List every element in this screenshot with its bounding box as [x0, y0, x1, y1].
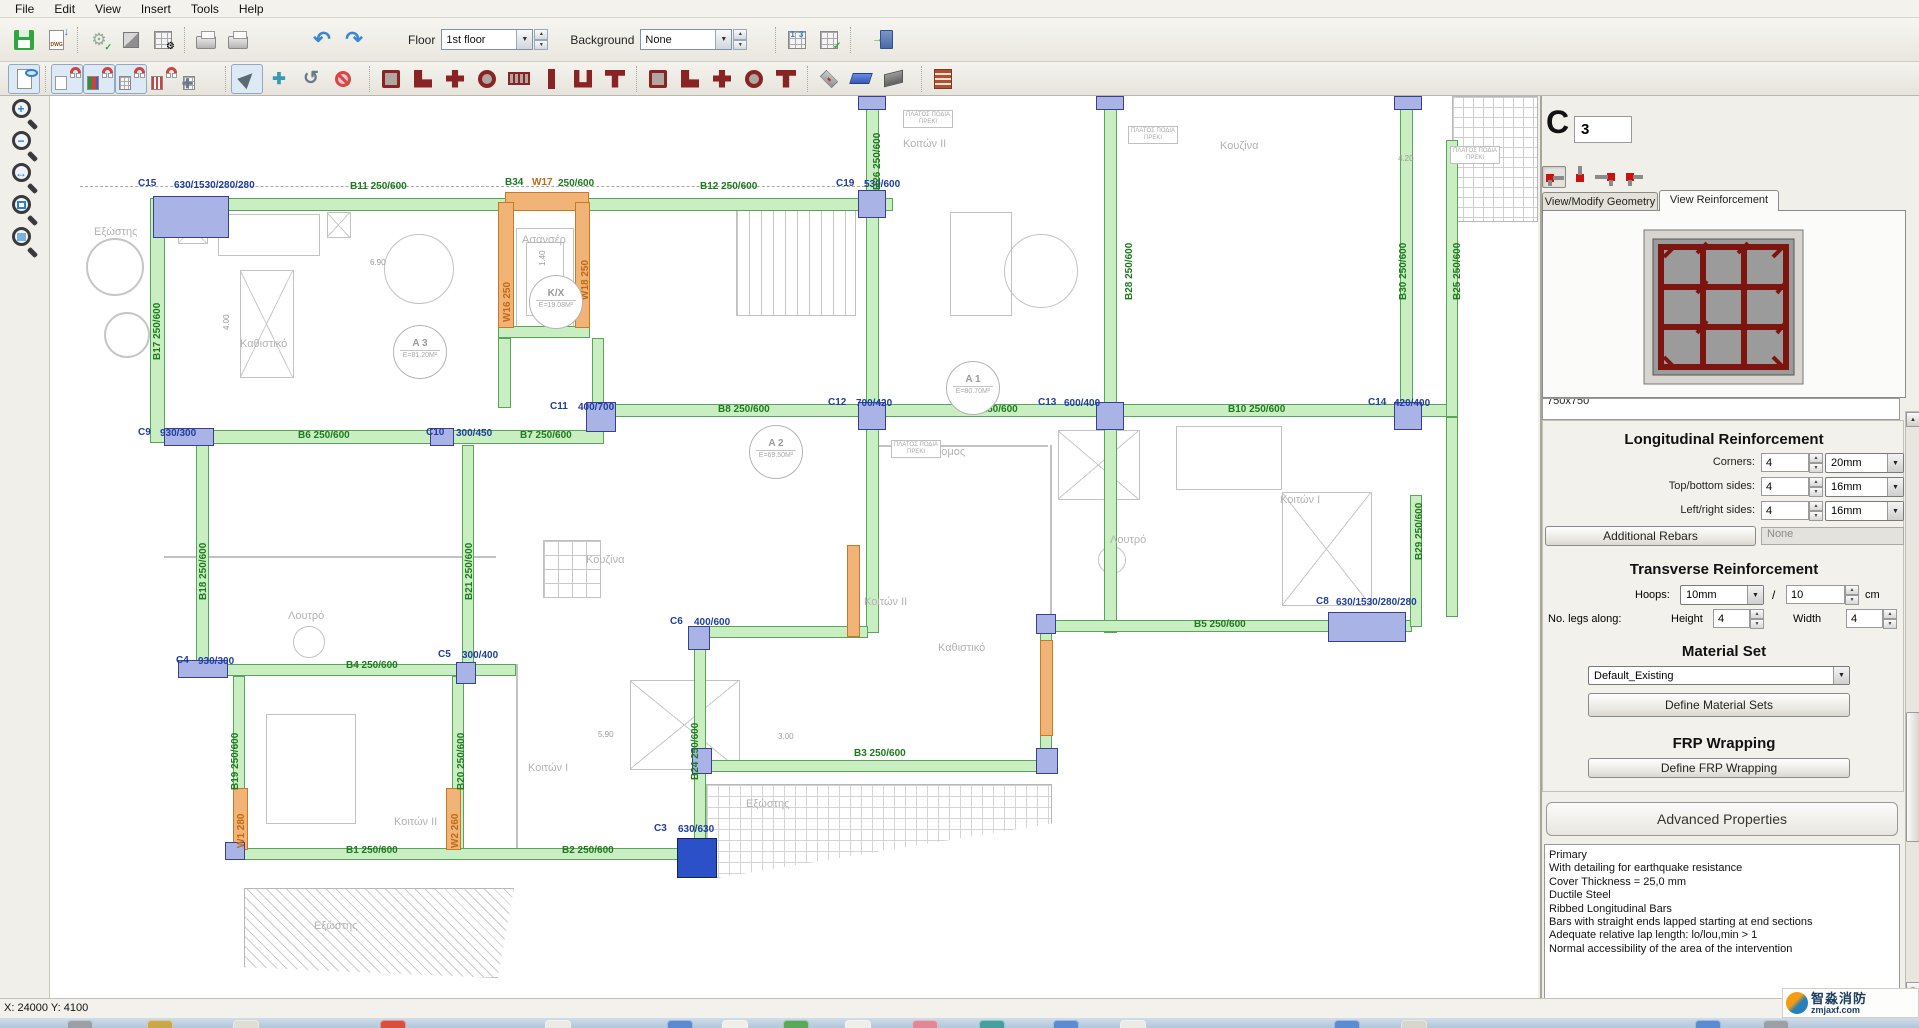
- plan-member-label: C8: [1316, 596, 1329, 607]
- menu-bar: FileEditViewInsertToolsHelp: [0, 0, 1919, 18]
- plan-member-label: B26 250/600: [872, 133, 883, 190]
- grid-icon: [119, 76, 131, 90]
- plan-area-circle: A 2E=69.50M²: [749, 425, 803, 479]
- plan-furniture: [1282, 492, 1372, 606]
- taskbar-app-icon[interactable]: [147, 1020, 173, 1028]
- magnifier-handle: [26, 119, 37, 130]
- zoom-extents-icon: ↔: [12, 163, 31, 182]
- topbottom-count-input[interactable]: [1761, 477, 1809, 496]
- zoom-window-icon: [12, 195, 31, 214]
- legs-width-input[interactable]: [1846, 609, 1883, 628]
- plan-room-label: Λουτρό: [1110, 534, 1146, 546]
- toolbar-separator: [225, 66, 226, 92]
- plan-room-label: Κοιτών II: [394, 816, 437, 828]
- scroll-up-arrow[interactable]: ▲: [1906, 412, 1919, 427]
- U-section-tool[interactable]: [567, 64, 599, 94]
- plan-furniture: [244, 888, 514, 978]
- plan-lintel-label: ΠΛΑΤΟΣ ΠΟΔΙΑΠΡΕΚΙ: [1128, 126, 1178, 144]
- column-cross-tool[interactable]: [439, 64, 471, 94]
- snap-nodes-button[interactable]: ✚: [179, 64, 211, 94]
- advanced-property-line: Cover Thickness = 25,0 mm: [1549, 876, 1897, 889]
- tab-view-reinforcement[interactable]: View Reinforcement: [1659, 190, 1779, 211]
- cross-section-icon: [446, 70, 464, 88]
- taskbar-app-icon[interactable]: [979, 1020, 1005, 1028]
- plan-member-label: W2 260: [450, 814, 461, 848]
- plan-room-label: Κοιτών II: [864, 596, 907, 608]
- taskbar-app-icon[interactable]: [912, 1020, 938, 1028]
- legs-height-spinner[interactable]: ▲▼: [1750, 609, 1764, 628]
- plan-furniture: [293, 626, 325, 658]
- plan-column-selected[interactable]: [677, 838, 717, 878]
- plan-member-label: B34: [505, 177, 523, 188]
- plan-member-label: 300/450: [456, 428, 492, 439]
- zoom-sidebar: + − ↔: [0, 96, 50, 998]
- taskbar-app-icon[interactable]: [783, 1020, 809, 1028]
- toolbar-separator: [184, 27, 185, 53]
- plan-column[interactable]: [858, 190, 886, 218]
- topbottom-label: Top/bottom sides:: [1669, 480, 1755, 492]
- plan-column[interactable]: [1036, 748, 1058, 774]
- square-jacket-icon: [649, 70, 667, 88]
- plan-member-label: C5: [438, 649, 451, 660]
- wall-section-tool[interactable]: [503, 64, 535, 94]
- leftright-label: Left/right sides:: [1680, 504, 1755, 516]
- plan-member-label: W17: [532, 177, 553, 188]
- plan-member-label: C10: [426, 427, 444, 438]
- plan-furniture: [630, 680, 740, 770]
- material-set-select[interactable]: Default_Existing▼: [1588, 666, 1850, 685]
- advanced-property-line: Normal accessibility of the area of the …: [1549, 943, 1897, 956]
- plan-member-label: B6 250/600: [298, 430, 350, 441]
- magnet-icon: [102, 67, 113, 77]
- zoom-in-button[interactable]: +: [9, 98, 41, 128]
- plan-room-label: Λουτρό: [288, 610, 324, 622]
- zoom-selected-button[interactable]: [9, 226, 41, 256]
- plan-furniture: [543, 540, 601, 598]
- plan-column[interactable]: [456, 662, 476, 684]
- print-button[interactable]: [190, 25, 222, 55]
- corners-diameter-select[interactable]: 20mm▼: [1825, 453, 1904, 473]
- L-jacket-icon: [681, 70, 699, 88]
- printer-preview-icon: [228, 36, 248, 49]
- magnet-icon: [166, 67, 177, 77]
- plan-member-label: B24 250/600: [690, 723, 701, 780]
- background-select[interactable]: None▼: [640, 29, 732, 50]
- hoops-diameter-value: 10mm: [1686, 589, 1717, 601]
- toolbar-separator: [77, 27, 78, 53]
- plan-member-label: 600/400: [1064, 398, 1100, 409]
- taskbar-app-icon[interactable]: [1401, 1020, 1427, 1028]
- plan-member-label: 630/1530/280/280: [1336, 597, 1417, 608]
- member-type-label: C: [1546, 104, 1569, 141]
- plan-dimension: 5.90: [598, 730, 614, 739]
- plan-member-label: C13: [1038, 397, 1056, 408]
- taskbar-app-icon[interactable]: [667, 1020, 693, 1028]
- floor-numbering-button[interactable]: 13: [781, 25, 813, 55]
- magnifier-handle: [26, 247, 37, 258]
- red-grid-icon: [151, 76, 163, 90]
- save-button[interactable]: [8, 25, 40, 55]
- material-set-title: Material Set: [1543, 643, 1905, 660]
- longitudinal-title: Longitudinal Reinforcement: [1543, 431, 1905, 448]
- hoops-spacing-spinner[interactable]: ▲▼: [1845, 585, 1859, 604]
- plan-furniture: [327, 212, 351, 238]
- legs-height-input[interactable]: [1713, 609, 1750, 628]
- plan-dimension: 3.00: [778, 732, 794, 741]
- watermark: 智淼消防zmjaxf.com: [1782, 988, 1919, 1018]
- panel-scrollbar[interactable]: ▲ ▼: [1905, 411, 1919, 998]
- legs-width-spinner[interactable]: ▲▼: [1883, 609, 1897, 628]
- plan-furniture: [1176, 426, 1282, 490]
- plan-room-label: Ασανσέρ: [522, 234, 566, 246]
- magnifier-handle: [26, 215, 37, 226]
- width-label: Width: [1793, 613, 1821, 625]
- cross-arrows-icon: ✚: [182, 76, 193, 92]
- plan-member-label: 700/420: [856, 398, 892, 409]
- plan-member-label: B10 250/600: [1228, 404, 1285, 415]
- plan-beam[interactable]: [233, 848, 710, 860]
- plan-wall[interactable]: [847, 545, 860, 637]
- reinforcement-preview-box: [1542, 210, 1906, 398]
- advanced-property-line: Adequate relative lap length: lo/lou,min…: [1549, 929, 1897, 942]
- corners-count-input[interactable]: [1761, 453, 1809, 472]
- plan-beam[interactable]: [498, 338, 511, 408]
- zoom-window-button[interactable]: [9, 194, 41, 224]
- plan-column[interactable]: [1036, 614, 1056, 634]
- plan-beam[interactable]: [700, 760, 1052, 772]
- plan-member-label: B30 250/600: [1398, 243, 1409, 300]
- L-section-icon: [414, 70, 432, 88]
- column-circle-tool[interactable]: [471, 64, 503, 94]
- dwg-import-button[interactable]: ↓: [40, 25, 72, 55]
- plan-furniture: [266, 714, 356, 824]
- chevron-down-icon: ▼: [1833, 667, 1849, 684]
- zoom-extents-button[interactable]: ↔: [9, 162, 41, 192]
- dwg-file-icon: [49, 30, 64, 50]
- orientation-button-2[interactable]: [1568, 166, 1592, 188]
- plan-member-label: B28 250/600: [1124, 243, 1135, 300]
- magnet-icon: [70, 67, 81, 77]
- rotate-icon: ↺: [303, 67, 319, 90]
- plan-beam[interactable]: [1104, 96, 1117, 411]
- plan-furniture: [950, 212, 1012, 316]
- background-value: None: [645, 34, 671, 46]
- toolbar-separator: [850, 27, 851, 53]
- undo-icon: ↶: [313, 29, 331, 50]
- undo-button[interactable]: ↶: [306, 25, 338, 55]
- plan-room-label: Κουζίνα: [1220, 140, 1259, 152]
- jacket-L-tool[interactable]: [674, 64, 706, 94]
- plan-member-label: B4 250/600: [346, 660, 398, 671]
- zoom-in-icon: +: [12, 99, 31, 118]
- plan-member-label: B11 250/600: [350, 181, 407, 192]
- plan-room-label: Κοιτών I: [528, 762, 568, 774]
- floor-value: 1st floor: [446, 34, 485, 46]
- plan-member-label: B1 250/600: [346, 845, 398, 856]
- advanced-property-line: Bars with straight ends lapped starting …: [1549, 916, 1897, 929]
- corners-diameter-value: 20mm: [1831, 457, 1862, 469]
- plan-member-label: 400/700: [578, 402, 614, 413]
- wall-tool[interactable]: [535, 64, 567, 94]
- plan-member-label: B29 250/600: [1414, 503, 1425, 560]
- plan-member-label: 420/400: [1394, 398, 1430, 409]
- plan-column[interactable]: [1096, 402, 1124, 430]
- menu-item-file[interactable]: File: [6, 1, 43, 17]
- status-bar: X: 24000 Y: 4100: [0, 998, 1919, 1018]
- taskbar-app-icon[interactable]: [1695, 1020, 1721, 1028]
- beam-tool[interactable]: [845, 64, 877, 94]
- building-icon: [934, 69, 952, 89]
- additional-rebars-value: None: [1761, 527, 1904, 545]
- building-view-button[interactable]: [927, 64, 959, 94]
- member-number-input[interactable]: [1574, 116, 1632, 143]
- section-size-field: 750x750: [1542, 398, 1900, 420]
- topbottom-spinner[interactable]: ▲▼: [1809, 477, 1823, 496]
- plan-member-label: W16 250: [502, 282, 513, 322]
- forbid-icon: [335, 71, 351, 87]
- cursor-coordinates: X: 24000 Y: 4100: [4, 1002, 88, 1014]
- plan-member-label: B21 250/600: [464, 543, 475, 600]
- snap-dwg-button[interactable]: [51, 64, 83, 94]
- plan-column[interactable]: [1328, 612, 1406, 642]
- watermark-line2: zmjaxf.com: [1811, 1005, 1867, 1015]
- plan-wall[interactable]: [1040, 640, 1053, 736]
- exit-button[interactable]: [870, 25, 902, 55]
- orientation-button-4[interactable]: [1622, 166, 1646, 188]
- topbottom-diameter-value: 16mm: [1831, 481, 1862, 493]
- floor-spinner[interactable]: ▲▼: [534, 29, 548, 50]
- plan-member-label: 400/600: [694, 617, 730, 628]
- material-set-value: Default_Existing: [1594, 670, 1674, 682]
- plan-member-label: B7 250/600: [520, 430, 572, 441]
- orientation-button-1[interactable]: [1542, 166, 1566, 188]
- beam-3d-icon: [849, 73, 873, 84]
- taskbar-app-icon[interactable]: [1053, 1020, 1079, 1028]
- plan-member-label: 300/400: [462, 650, 498, 661]
- cursor-arrow-icon: [237, 68, 258, 88]
- circle-section-icon: [478, 70, 496, 88]
- chevron-down-icon: ▼: [1887, 454, 1903, 472]
- taskbar-app-icon[interactable]: [845, 1020, 871, 1028]
- leftright-count-input[interactable]: [1761, 501, 1809, 520]
- plan-room-label: Καθιστικό: [240, 338, 287, 350]
- menu-item-edit[interactable]: Edit: [45, 1, 84, 17]
- advanced-properties-text: PrimaryWith detailing for earthquake res…: [1544, 844, 1900, 1002]
- plan-member-label: C11: [550, 401, 568, 412]
- magnifier-handle: [26, 151, 37, 162]
- corners-spinner[interactable]: ▲▼: [1809, 453, 1823, 472]
- windows-taskbar: [0, 1018, 1919, 1028]
- print-preview-button[interactable]: [222, 25, 254, 55]
- magnet-icon: [134, 67, 145, 77]
- plan-member-label: C19: [836, 178, 854, 189]
- snap-redgrid-button[interactable]: [147, 64, 179, 94]
- redo-button[interactable]: ↷: [338, 25, 370, 55]
- define-frp-wrapping-button[interactable]: Define FRP Wrapping: [1588, 758, 1850, 778]
- plan-room-label: Κοιτών II: [903, 138, 946, 150]
- taskbar-app-icon[interactable]: [1334, 1020, 1360, 1028]
- toolbar-separator: [369, 66, 370, 92]
- 3d-view-button[interactable]: [115, 25, 147, 55]
- background-label: Background: [570, 33, 634, 47]
- cross-jacket-icon: [713, 70, 731, 88]
- hoops-diameter-select[interactable]: 10mm▼: [1680, 585, 1764, 605]
- plan-column[interactable]: [153, 196, 229, 238]
- plan-dimension: 6.90: [370, 258, 386, 267]
- floor-plan-canvas[interactable]: C15630/1530/280/280B11 250/600B34W17250/…: [50, 96, 1538, 998]
- plan-furniture: [218, 214, 320, 256]
- exit-door-icon: [880, 30, 893, 49]
- slash-separator: /: [1772, 588, 1775, 602]
- grid-settings-button[interactable]: ⚙: [147, 25, 179, 55]
- delete-tool[interactable]: [327, 64, 359, 94]
- menu-item-insert[interactable]: Insert: [132, 1, 180, 17]
- snap-grid-button[interactable]: [115, 64, 147, 94]
- floor-select[interactable]: 1st floor▼: [441, 29, 533, 50]
- chevron-down-icon: ▼: [715, 30, 731, 49]
- settings-button[interactable]: ⚙✓: [83, 25, 115, 55]
- advanced-properties-header[interactable]: Advanced Properties: [1546, 802, 1898, 836]
- plan-area-circle: A 3E=81.20M²: [393, 325, 447, 379]
- toolbar-separator: [45, 66, 46, 92]
- column-square-tool[interactable]: [375, 64, 407, 94]
- plan-beam[interactable]: [1104, 417, 1117, 633]
- plan-furniture: [384, 234, 454, 304]
- height-label: Height: [1671, 613, 1703, 625]
- color-grid-icon: [87, 76, 99, 90]
- gears-icon: ⚙✓: [91, 31, 106, 48]
- plan-member-label: B19 250/600: [230, 733, 241, 790]
- redo-icon: ↷: [345, 29, 363, 50]
- column-section-diagram: [1643, 229, 1804, 385]
- taskbar-app-icon[interactable]: [233, 1020, 259, 1028]
- plan-member-label: 930/300: [198, 656, 234, 667]
- plan-room-label: Κουζίνα: [586, 554, 625, 566]
- plan-member-label: B5 250/600: [1194, 619, 1246, 630]
- plan-beam[interactable]: [1446, 417, 1458, 617]
- reinforcement-sections: Longitudinal Reinforcement Corners: ▲▼ 2…: [1542, 420, 1904, 792]
- main-toolbar: ↓ ⚙✓ ⚙ ↶ ↷ Floor 1st floor▼ ▲▼ Backgroun…: [0, 18, 1919, 62]
- leftright-diameter-value: 16mm: [1831, 505, 1862, 517]
- taskbar-app-icon[interactable]: [1120, 1020, 1146, 1028]
- check-grid-icon: ✓: [820, 31, 838, 49]
- background-spinner[interactable]: ▲▼: [733, 29, 747, 50]
- select-tool[interactable]: [231, 64, 263, 94]
- plan-furniture: [240, 270, 294, 378]
- plan-lintel-label: ΠΛΑΤΟΣ ΠΟΔΙΑΠΡΕΚΙ: [891, 440, 941, 458]
- zoom-out-button[interactable]: −: [9, 130, 41, 160]
- move-tool[interactable]: ✚: [263, 64, 295, 94]
- advanced-property-line: Ribbed Longitudinal Bars: [1549, 903, 1897, 916]
- slab-tool[interactable]: [813, 64, 845, 94]
- plan-furniture: [1058, 430, 1140, 500]
- plan-room-label: Εξώστης: [94, 226, 137, 238]
- plan-beam[interactable]: [592, 338, 604, 404]
- taskbar-app-icon[interactable]: [380, 1020, 406, 1028]
- menu-item-help[interactable]: Help: [230, 1, 273, 17]
- menu-item-tools[interactable]: Tools: [182, 1, 228, 17]
- advanced-property-line: With detailing for earthquake resistance: [1549, 862, 1897, 875]
- hoops-spacing-input[interactable]: [1786, 585, 1845, 604]
- taskbar-app-icon[interactable]: [1763, 1020, 1789, 1028]
- plan-furniture: [104, 312, 150, 358]
- frp-wrapping-title: FRP Wrapping: [1543, 735, 1905, 752]
- jacket-circle-tool[interactable]: [738, 64, 770, 94]
- plan-column[interactable]: [688, 626, 710, 650]
- additional-rebars-button[interactable]: Additional Rebars: [1545, 526, 1756, 546]
- plan-column[interactable]: [1096, 96, 1124, 110]
- plan-column[interactable]: [1394, 96, 1422, 110]
- plan-room-label: Καθιστικό: [938, 642, 985, 654]
- watermark-line1: 智淼消防: [1811, 992, 1867, 1005]
- section-size-value: 750x750: [1547, 398, 1589, 407]
- printer-icon: [196, 36, 216, 49]
- column-L-tool[interactable]: [407, 64, 439, 94]
- jacket-square-tool[interactable]: [642, 64, 674, 94]
- T-section-icon: [605, 70, 625, 88]
- menu-item-view[interactable]: View: [86, 1, 130, 17]
- jacket-T-tool[interactable]: [770, 64, 802, 94]
- plan-member-label: C9: [138, 427, 151, 438]
- plan-member-label: 930/300: [160, 428, 196, 439]
- tab-view-modify-geometry[interactable]: View/Modify Geometry: [1542, 192, 1658, 211]
- ramp-tool[interactable]: [877, 64, 909, 94]
- drawing-toolbar: ✚ ✚ ↺: [0, 62, 1919, 96]
- U-section-icon: [574, 70, 592, 88]
- plan-member-label: B17 250/600: [152, 303, 163, 360]
- plan-member-label: B25 250/600: [1452, 243, 1463, 300]
- zoom-out-icon: −: [12, 131, 31, 150]
- zoom-selected-icon: [12, 227, 31, 246]
- check-model-button[interactable]: ✓: [813, 25, 845, 55]
- plan-room-label: Κοιτών I: [1280, 494, 1320, 506]
- define-material-sets-button[interactable]: Define Material Sets: [1588, 693, 1850, 717]
- topbottom-diameter-select[interactable]: 16mm▼: [1825, 477, 1904, 497]
- scroll-thumb[interactable]: [1906, 712, 1919, 842]
- circle-jacket-icon: [745, 70, 763, 88]
- taskbar-app-icon[interactable]: [722, 1020, 748, 1028]
- rotate-tool[interactable]: ↺: [295, 64, 327, 94]
- plan-column[interactable]: [858, 96, 886, 110]
- plan-member-label: C14: [1368, 397, 1386, 408]
- toolbar-separator: [775, 27, 776, 53]
- save-icon: [14, 30, 34, 50]
- leftright-diameter-select[interactable]: 16mm▼: [1825, 501, 1904, 521]
- plan-member-label: C4: [176, 655, 189, 666]
- jacket-cross-tool[interactable]: [706, 64, 738, 94]
- transverse-title: Transverse Reinforcement: [1543, 561, 1905, 578]
- leftright-spinner[interactable]: ▲▼: [1809, 501, 1823, 520]
- plan-furniture: [164, 556, 496, 558]
- plan-member-label: C12: [828, 397, 846, 408]
- taskbar-app-icon[interactable]: [545, 1020, 571, 1028]
- dwg-view-toggle[interactable]: [8, 64, 40, 94]
- legs-label: No. legs along:: [1548, 613, 1621, 625]
- plan-area-circle: A 1E=80.70M²: [946, 361, 1000, 415]
- chevron-down-icon: ▼: [1887, 502, 1903, 520]
- plan-furniture: [516, 664, 518, 848]
- taskbar-app-icon[interactable]: [67, 1020, 93, 1028]
- plan-room-label: Εξώστης: [746, 798, 789, 810]
- plan-room-label: Εξώστης: [314, 920, 357, 932]
- snap-colorgrid-button[interactable]: [83, 64, 115, 94]
- numbered-grid-icon: 13: [788, 31, 806, 49]
- plan-dimension: 4.00: [222, 314, 231, 330]
- corners-label: Corners:: [1713, 456, 1755, 468]
- toolbar-separator: [636, 66, 637, 92]
- T-section-tool[interactable]: [599, 64, 631, 94]
- orientation-button-3[interactable]: [1595, 166, 1619, 188]
